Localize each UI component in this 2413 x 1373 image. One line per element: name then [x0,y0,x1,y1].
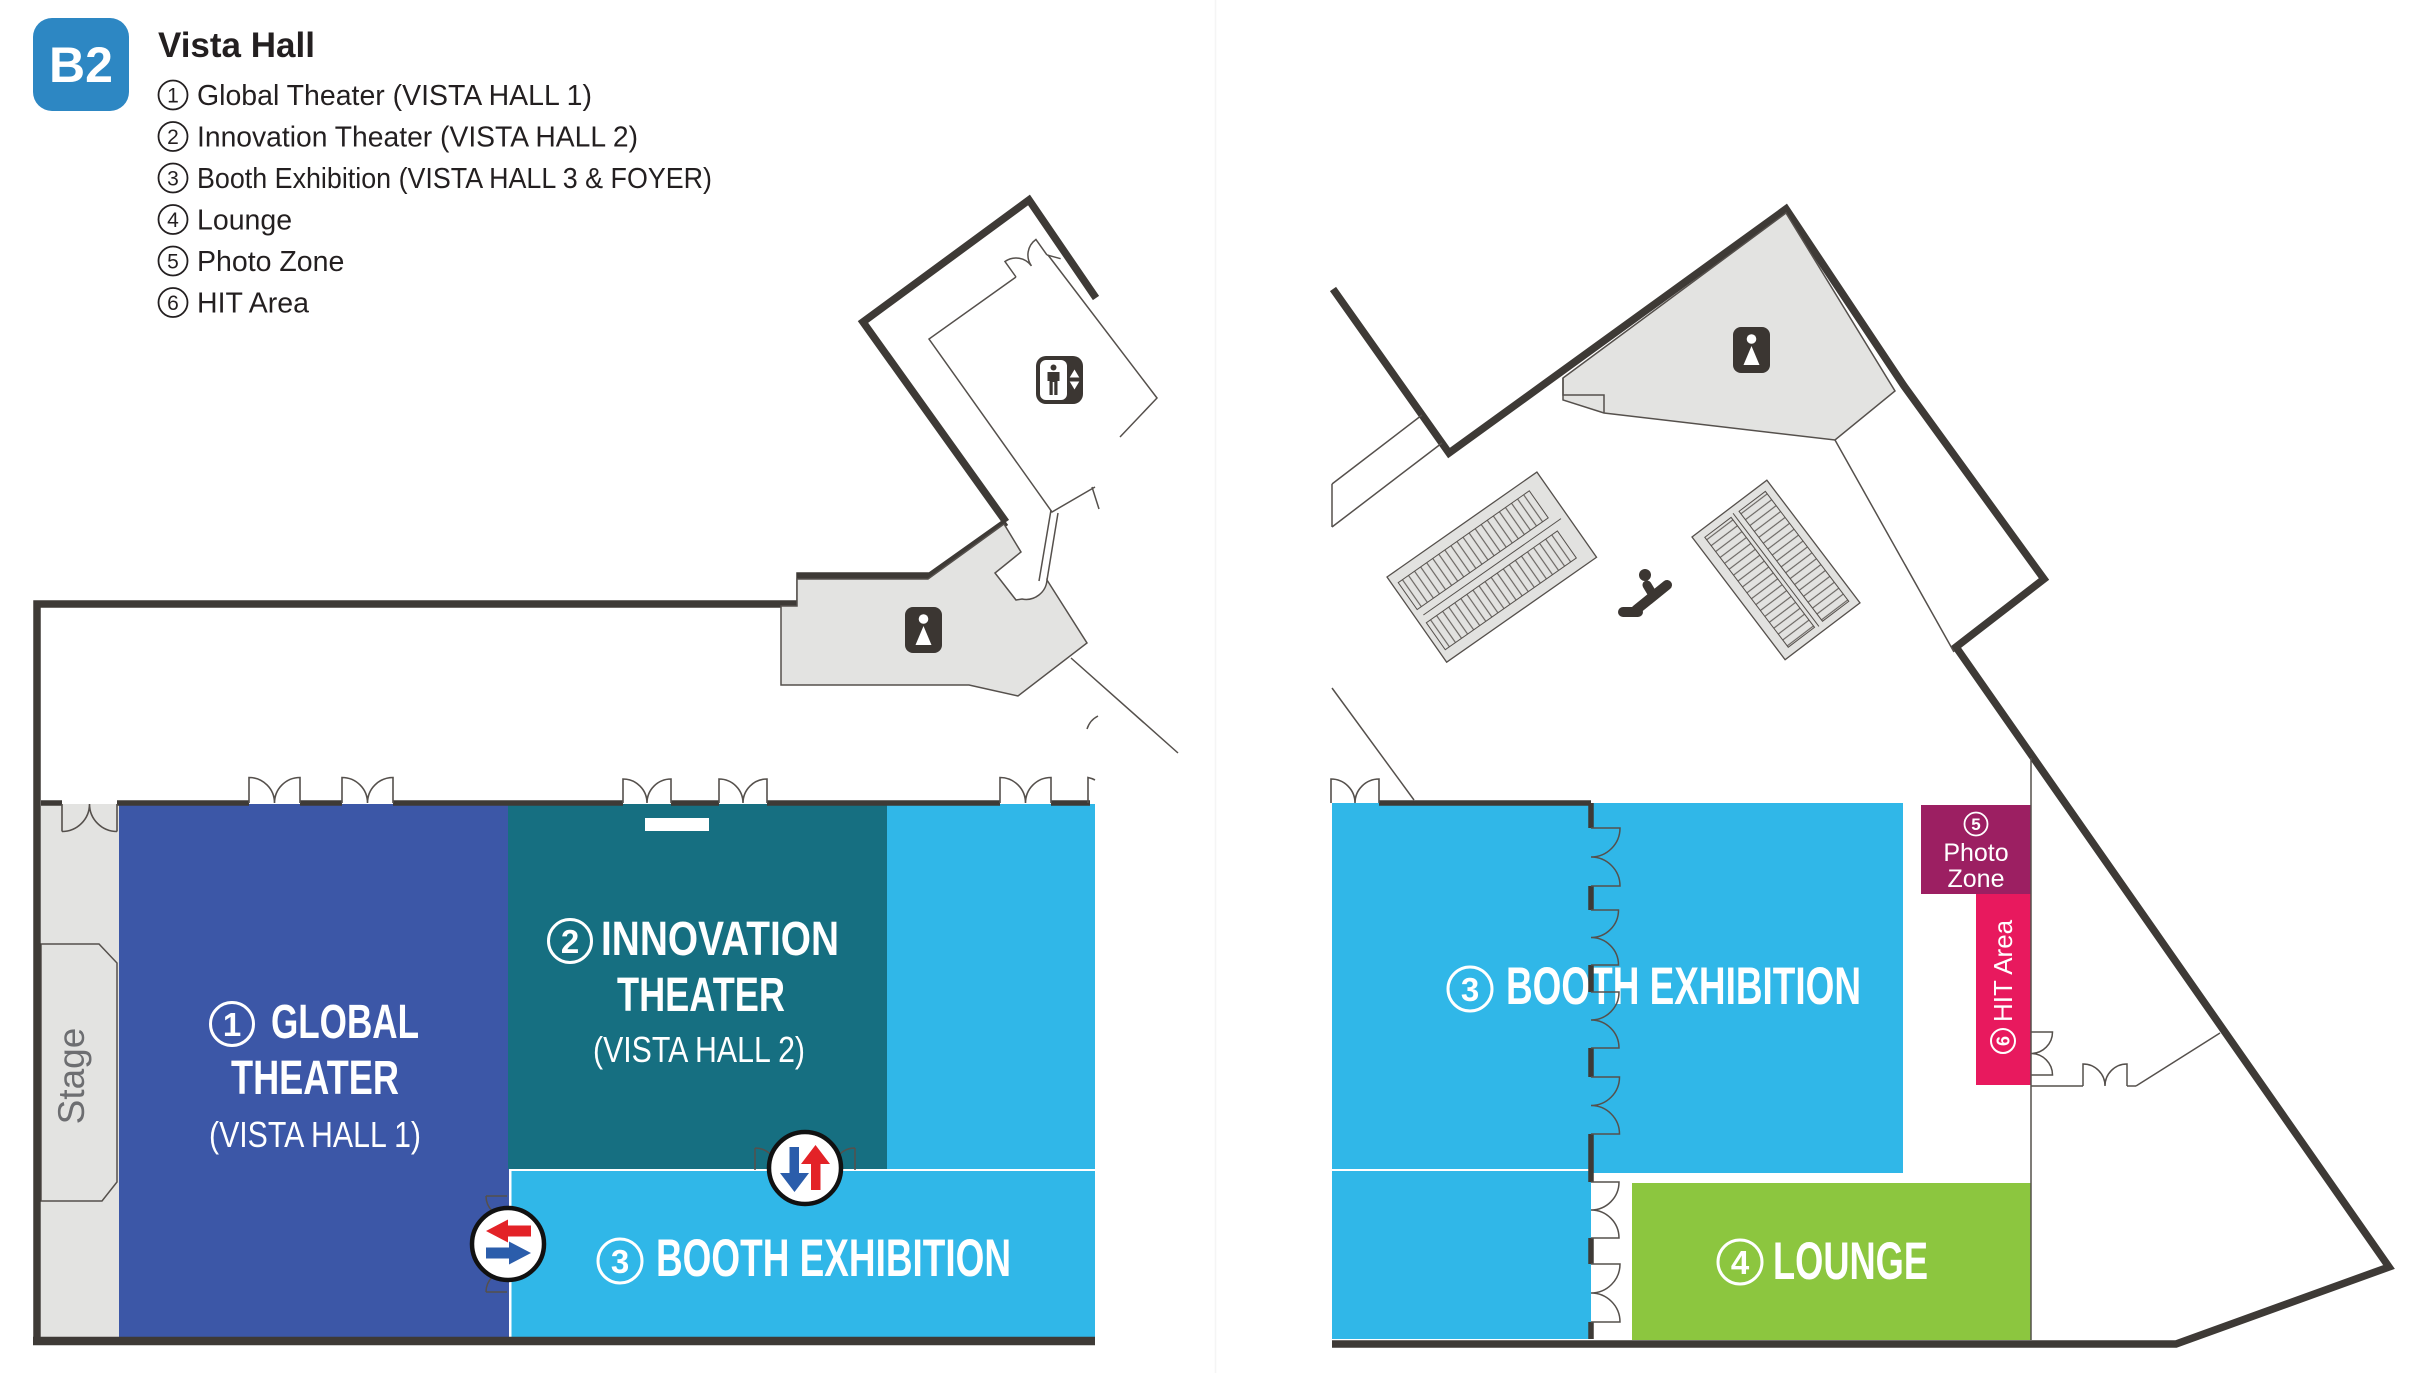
svg-text:(VISTA HALL 2): (VISTA HALL 2) [593,1029,805,1070]
svg-text:Stage: Stage [51,1028,92,1125]
svg-text:5: 5 [167,251,179,274]
svg-text:Booth Exhibition (VISTA HALL 3: Booth Exhibition (VISTA HALL 3 & FOYER) [197,163,712,195]
svg-text:(VISTA HALL 1): (VISTA HALL 1) [209,1114,421,1155]
svg-text:BOOTH EXHIBITION: BOOTH EXHIBITION [1506,957,1861,1016]
svg-text:2: 2 [167,126,179,149]
svg-text:HIT Area: HIT Area [1988,919,2018,1022]
svg-text:LOUNGE: LOUNGE [1773,1232,1928,1291]
svg-text:4: 4 [1731,1244,1750,1281]
svg-text:4: 4 [167,209,179,232]
svg-text:6: 6 [167,292,179,315]
svg-text:Innovation Theater (VISTA HALL: Innovation Theater (VISTA HALL 2) [197,122,638,154]
svg-text:GLOBAL: GLOBAL [271,996,419,1049]
svg-text:Lounge: Lounge [197,205,292,237]
svg-text:Zone: Zone [1948,865,2005,893]
svg-text:INNOVATION: INNOVATION [601,913,839,966]
svg-text:5: 5 [1971,815,1980,834]
svg-text:3: 3 [611,1243,629,1280]
svg-text:Photo Zone: Photo Zone [197,246,344,278]
svg-text:THEATER: THEATER [617,969,785,1022]
svg-text:3: 3 [1461,971,1479,1008]
svg-text:6: 6 [1994,1036,2014,1046]
svg-text:Vista Hall: Vista Hall [158,26,315,65]
svg-text:3: 3 [167,168,179,191]
svg-text:B2: B2 [49,37,113,93]
svg-text:1: 1 [223,1006,241,1043]
svg-text:1: 1 [167,85,179,108]
svg-text:Photo: Photo [1943,839,2008,867]
svg-text:Global Theater (VISTA HALL 1): Global Theater (VISTA HALL 1) [197,80,592,112]
svg-text:THEATER: THEATER [231,1052,399,1105]
svg-text:2: 2 [561,923,579,960]
svg-text:HIT Area: HIT Area [197,288,309,320]
svg-text:BOOTH EXHIBITION: BOOTH EXHIBITION [656,1229,1011,1288]
